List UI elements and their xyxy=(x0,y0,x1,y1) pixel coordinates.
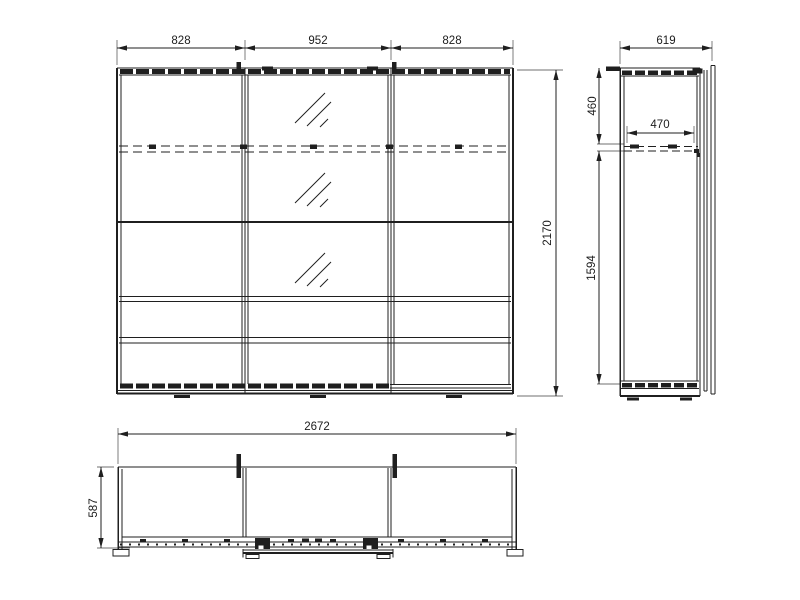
plan-foot-right xyxy=(507,550,523,557)
front-view: 828 952 828 2170 xyxy=(117,35,563,398)
dim-label-front-right-door-width: 828 xyxy=(442,35,461,47)
side-view: 619 460 1594 470 xyxy=(586,35,715,401)
dim-label-side-top-section: 460 xyxy=(587,96,599,115)
dim-label-front-total-height: 2170 xyxy=(542,220,554,246)
dim-label-side-bottom-section: 1594 xyxy=(586,255,598,281)
plan-cabinet-linework xyxy=(113,454,523,559)
mirror-glass-marks xyxy=(295,93,331,287)
plan-view-dimensions: 2672 587 xyxy=(88,421,516,548)
dim-label-front-middle-door-width: 952 xyxy=(308,35,327,47)
front-view-dimensions: 828 952 828 2170 xyxy=(117,35,563,396)
plan-door-stopper-right xyxy=(393,454,398,478)
wardrobe-technical-drawing: 828 952 828 2170 xyxy=(0,0,800,600)
dim-label-front-left-door-width: 828 xyxy=(171,35,190,47)
dim-label-plan-total-width: 2672 xyxy=(304,421,330,433)
dim-label-plan-depth: 587 xyxy=(88,498,100,517)
front-cabinet-linework xyxy=(117,62,513,398)
plan-view: 2672 587 xyxy=(88,421,523,559)
plan-door-stopper-left xyxy=(237,454,242,478)
technical-drawing-canvas: 828 952 828 2170 xyxy=(0,0,800,600)
front-top-stopper-left xyxy=(237,62,242,69)
plan-middle-door xyxy=(243,549,393,559)
dim-label-side-total-depth: 619 xyxy=(656,35,675,47)
front-top-stopper-right xyxy=(392,62,397,69)
dim-label-side-shelf-depth: 470 xyxy=(650,119,669,131)
plan-foot-left xyxy=(113,550,129,557)
side-view-dimensions: 619 460 1594 470 xyxy=(586,35,712,384)
side-cabinet-linework xyxy=(606,66,715,401)
